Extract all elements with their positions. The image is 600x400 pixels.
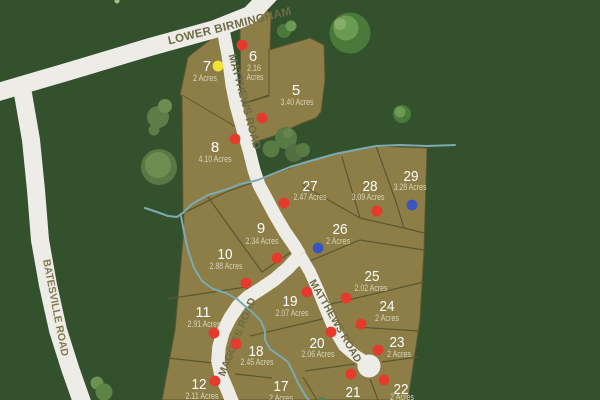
svg-text:9: 9 xyxy=(257,220,265,237)
svg-text:2 Acres: 2 Acres xyxy=(375,313,399,324)
svg-text:2.11 Acres: 2.11 Acres xyxy=(186,391,219,400)
svg-text:2.07 Acres: 2.07 Acres xyxy=(276,308,309,319)
svg-text:3.40 Acres: 3.40 Acres xyxy=(281,97,314,108)
svg-text:3.09 Acres: 3.09 Acres xyxy=(352,192,385,203)
svg-text:2 Acres: 2 Acres xyxy=(390,392,414,400)
svg-text:2.45 Acres: 2.45 Acres xyxy=(241,357,274,368)
svg-text:2.34 Acres: 2.34 Acres xyxy=(246,236,279,247)
svg-text:2 Acres: 2 Acres xyxy=(269,393,293,400)
svg-text:2.06 Acres: 2.06 Acres xyxy=(302,349,335,360)
svg-text:2.47 Acres: 2.47 Acres xyxy=(294,192,327,203)
svg-text:2.02 Acres: 2.02 Acres xyxy=(355,283,388,294)
svg-text:2 Acres: 2 Acres xyxy=(193,73,217,84)
svg-text:2.88 Acres: 2.88 Acres xyxy=(210,261,243,272)
svg-text:2 Acres: 2 Acres xyxy=(326,236,350,247)
svg-text:21: 21 xyxy=(346,384,361,400)
svg-text:Acres: Acres xyxy=(247,72,264,83)
svg-text:3.28 Acres: 3.28 Acres xyxy=(394,182,427,193)
svg-text:2 Acres: 2 Acres xyxy=(387,349,411,360)
svg-text:4.10 Acres: 4.10 Acres xyxy=(199,154,232,165)
